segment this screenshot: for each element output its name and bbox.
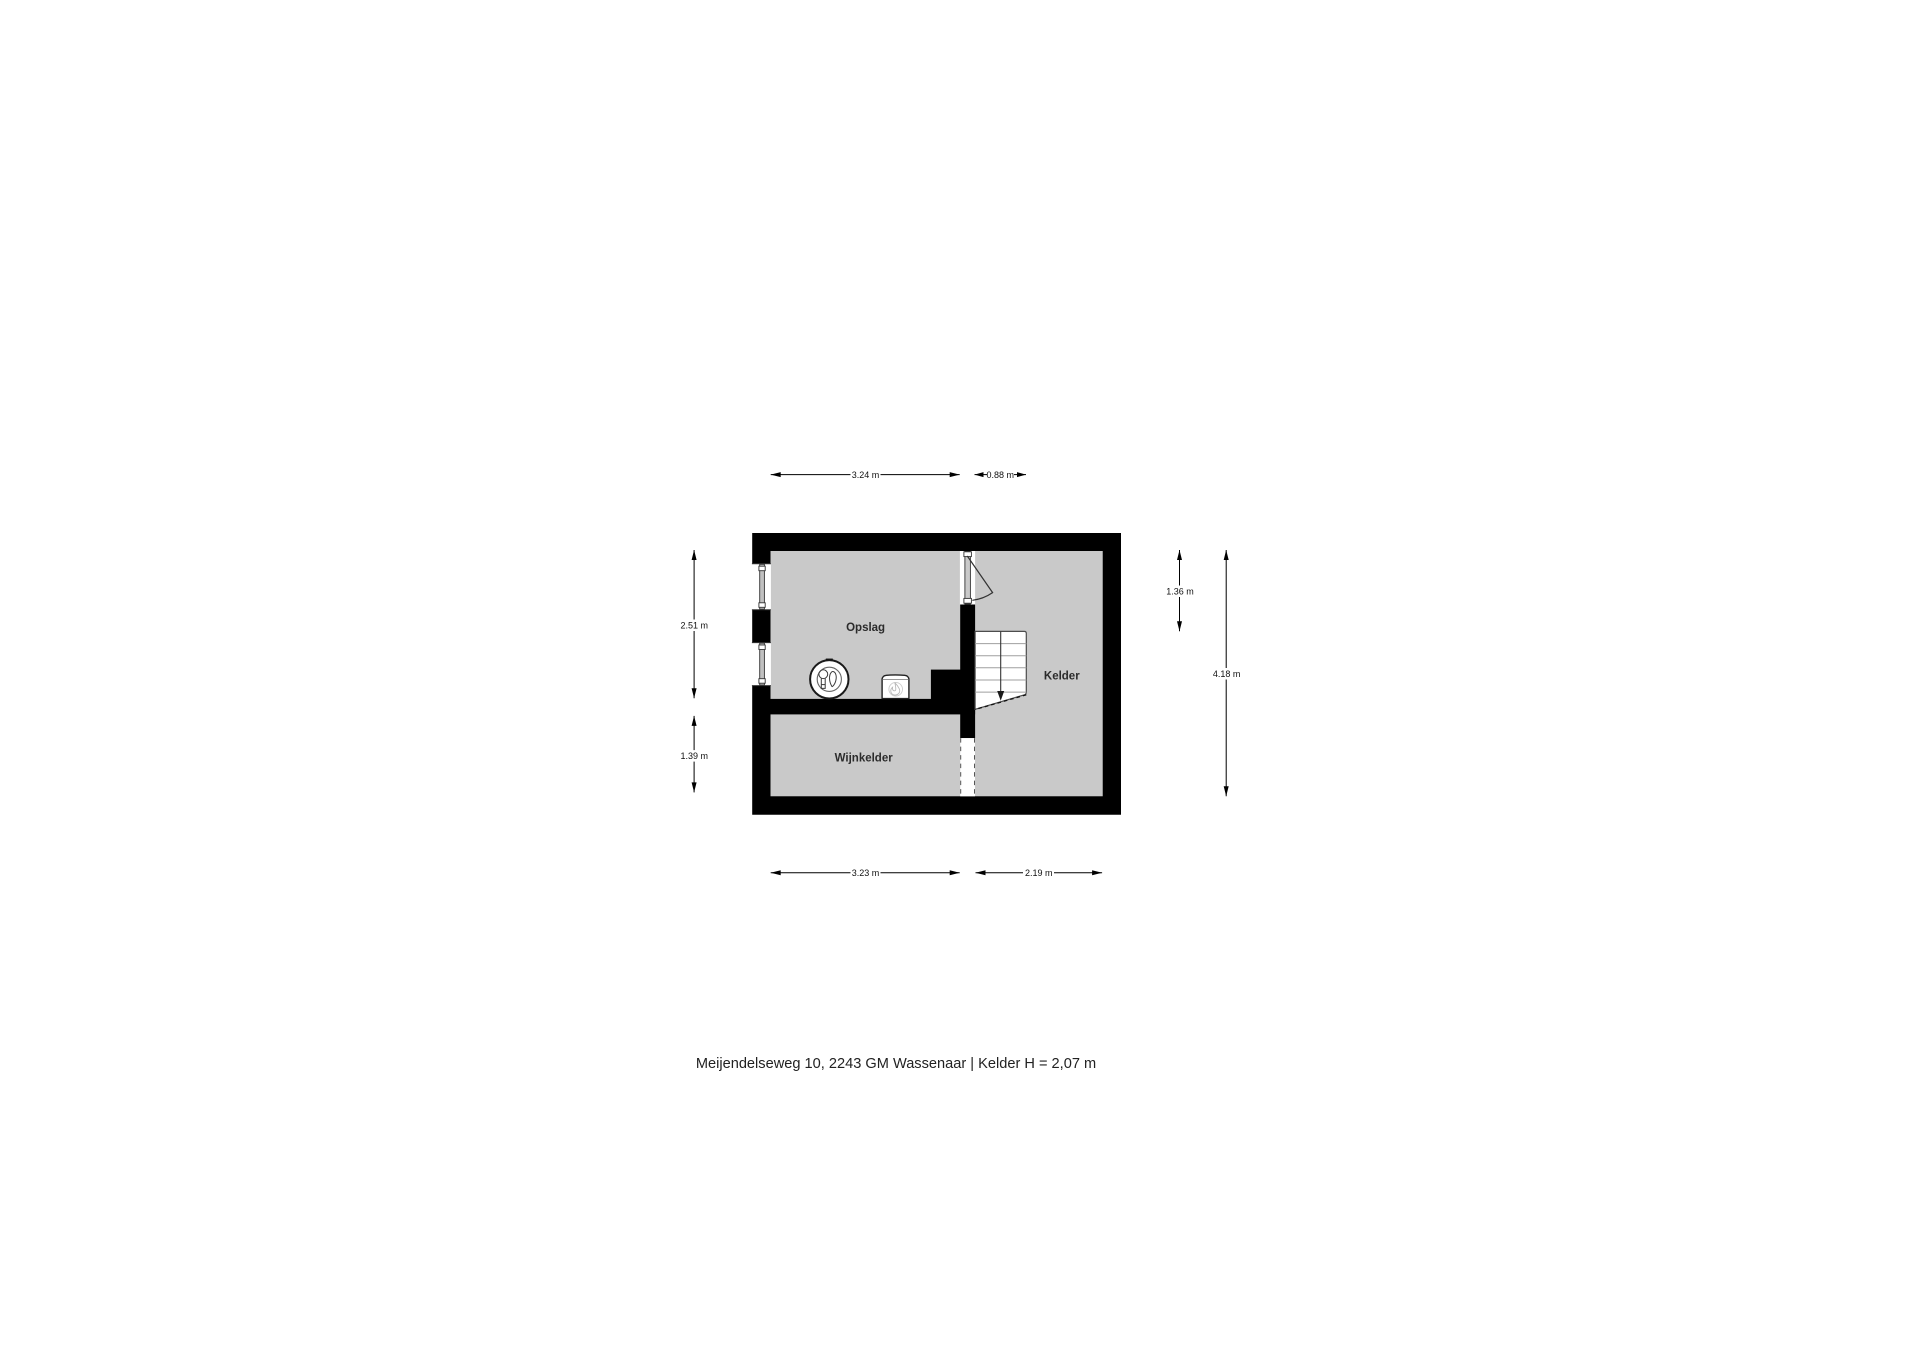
- svg-text:Wijnkelder: Wijnkelder: [835, 753, 894, 765]
- svg-text:Opslag: Opslag: [846, 622, 885, 634]
- svg-text:3.23 m: 3.23 m: [852, 868, 880, 878]
- svg-text:4.18 m: 4.18 m: [1213, 669, 1241, 679]
- svg-text:2.19 m: 2.19 m: [1025, 868, 1053, 878]
- svg-text:0.88 m: 0.88 m: [987, 470, 1015, 480]
- svg-text:Meijendelseweg 10, 2243 GM Was: Meijendelseweg 10, 2243 GM Wassenaar | K…: [696, 1056, 1096, 1072]
- svg-text:2.51 m: 2.51 m: [681, 621, 709, 631]
- svg-text:1.36 m: 1.36 m: [1166, 587, 1194, 597]
- svg-text:Kelder: Kelder: [1044, 671, 1080, 683]
- svg-text:1.39 m: 1.39 m: [681, 751, 709, 761]
- svg-text:3.24 m: 3.24 m: [852, 470, 880, 480]
